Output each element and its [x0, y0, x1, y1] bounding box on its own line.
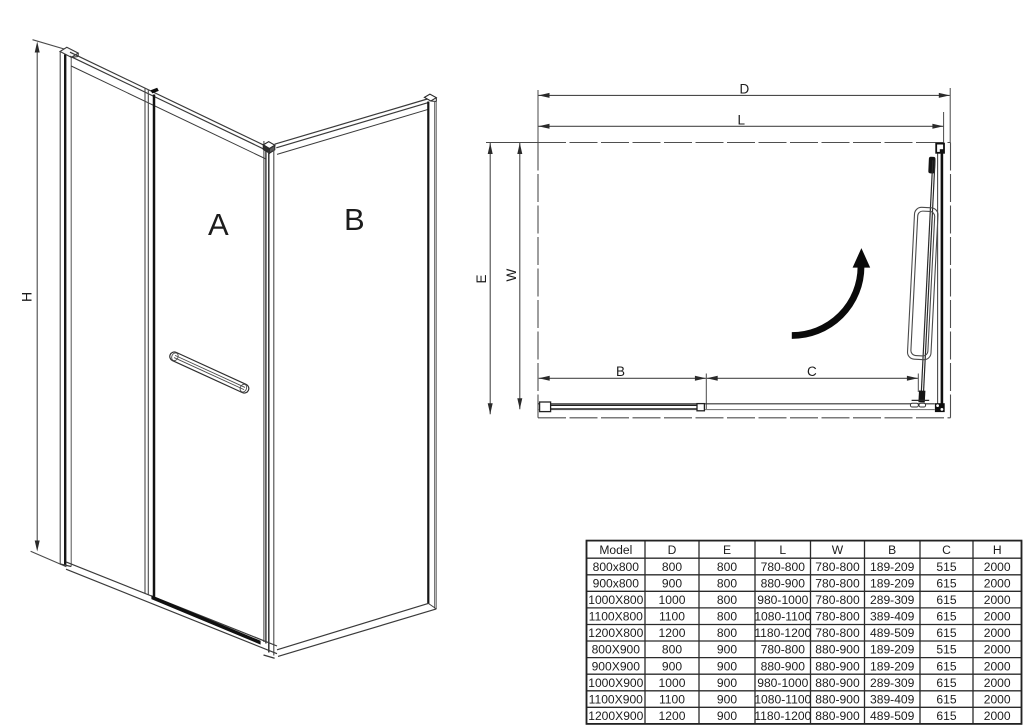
- svg-text:1100: 1100: [659, 692, 685, 706]
- svg-text:W: W: [504, 269, 519, 282]
- svg-text:615: 615: [936, 577, 956, 591]
- svg-text:880-900: 880-900: [815, 676, 860, 690]
- svg-text:800: 800: [717, 626, 737, 640]
- svg-text:B: B: [344, 202, 365, 237]
- svg-text:800X900: 800X900: [592, 643, 641, 657]
- svg-text:880-900: 880-900: [815, 692, 860, 706]
- svg-text:1200X900: 1200X900: [588, 709, 643, 723]
- svg-text:E: E: [723, 543, 731, 557]
- svg-text:615: 615: [936, 709, 956, 723]
- svg-text:780-800: 780-800: [761, 560, 806, 574]
- svg-text:L: L: [738, 113, 746, 128]
- svg-text:780-800: 780-800: [815, 560, 860, 574]
- svg-text:2000: 2000: [984, 560, 1011, 574]
- svg-text:900: 900: [717, 676, 737, 690]
- svg-text:1000: 1000: [659, 676, 686, 690]
- svg-text:389-409: 389-409: [870, 692, 915, 706]
- svg-text:615: 615: [936, 659, 956, 673]
- svg-text:900: 900: [717, 709, 737, 723]
- svg-text:900: 900: [662, 577, 682, 591]
- svg-text:2000: 2000: [984, 659, 1011, 673]
- svg-text:1200: 1200: [659, 709, 686, 723]
- svg-text:880-900: 880-900: [761, 659, 806, 673]
- svg-text:615: 615: [936, 676, 956, 690]
- svg-text:900: 900: [717, 659, 737, 673]
- svg-text:615: 615: [936, 626, 956, 640]
- svg-text:E: E: [474, 274, 489, 283]
- svg-text:800: 800: [717, 593, 737, 607]
- svg-text:189-209: 189-209: [870, 560, 915, 574]
- svg-text:389-409: 389-409: [870, 610, 915, 624]
- svg-text:780-800: 780-800: [815, 610, 860, 624]
- svg-text:1080-1100: 1080-1100: [754, 692, 811, 706]
- svg-text:B: B: [616, 364, 625, 379]
- svg-text:H: H: [993, 543, 1002, 557]
- svg-text:800: 800: [662, 643, 682, 657]
- svg-text:900X900: 900X900: [592, 659, 641, 673]
- svg-text:H: H: [19, 292, 35, 302]
- svg-text:C: C: [942, 543, 951, 557]
- svg-text:2000: 2000: [984, 577, 1011, 591]
- svg-text:780-800: 780-800: [815, 626, 860, 640]
- svg-text:2000: 2000: [984, 692, 1011, 706]
- svg-text:289-309: 289-309: [870, 593, 915, 607]
- svg-text:880-900: 880-900: [761, 577, 806, 591]
- svg-text:980-1000: 980-1000: [757, 593, 808, 607]
- svg-text:900: 900: [717, 643, 737, 657]
- svg-text:515: 515: [936, 643, 956, 657]
- svg-text:B: B: [888, 543, 896, 557]
- svg-text:880-900: 880-900: [815, 659, 860, 673]
- svg-text:189-209: 189-209: [870, 643, 915, 657]
- svg-text:900x800: 900x800: [593, 577, 640, 591]
- svg-text:880-900: 880-900: [815, 709, 860, 723]
- svg-text:900: 900: [717, 692, 737, 706]
- svg-text:780-800: 780-800: [815, 577, 860, 591]
- svg-text:515: 515: [936, 560, 956, 574]
- svg-text:2000: 2000: [984, 676, 1011, 690]
- svg-text:D: D: [668, 543, 677, 557]
- svg-text:189-209: 189-209: [870, 659, 915, 673]
- svg-text:1180-1200: 1180-1200: [754, 626, 811, 640]
- svg-text:615: 615: [936, 692, 956, 706]
- svg-text:800x800: 800x800: [593, 560, 640, 574]
- svg-text:Model: Model: [599, 543, 632, 557]
- svg-text:1000X900: 1000X900: [588, 676, 643, 690]
- svg-text:289-309: 289-309: [870, 676, 915, 690]
- svg-text:780-800: 780-800: [761, 643, 806, 657]
- svg-text:1100X900: 1100X900: [589, 692, 644, 706]
- svg-text:2000: 2000: [984, 610, 1011, 624]
- svg-text:1080-1100: 1080-1100: [754, 610, 811, 624]
- svg-text:800: 800: [717, 610, 737, 624]
- svg-text:1200: 1200: [659, 626, 686, 640]
- svg-text:189-209: 189-209: [870, 577, 915, 591]
- svg-text:980-1000: 980-1000: [757, 676, 808, 690]
- svg-text:W: W: [832, 543, 844, 557]
- svg-text:2000: 2000: [984, 709, 1011, 723]
- svg-text:2000: 2000: [984, 643, 1011, 657]
- svg-text:1000: 1000: [659, 593, 686, 607]
- svg-text:D: D: [740, 82, 750, 97]
- svg-text:1100X800: 1100X800: [589, 610, 644, 624]
- svg-text:A: A: [208, 207, 229, 242]
- svg-text:1000X800: 1000X800: [588, 593, 643, 607]
- svg-text:900: 900: [662, 659, 682, 673]
- svg-text:C: C: [807, 364, 817, 379]
- svg-text:780-800: 780-800: [815, 593, 860, 607]
- svg-text:L: L: [779, 543, 786, 557]
- svg-text:489-509: 489-509: [870, 709, 915, 723]
- svg-text:615: 615: [936, 593, 956, 607]
- svg-text:800: 800: [717, 577, 737, 591]
- svg-text:800: 800: [662, 560, 682, 574]
- svg-text:1180-1200: 1180-1200: [754, 709, 811, 723]
- svg-text:800: 800: [717, 560, 737, 574]
- svg-text:489-509: 489-509: [870, 626, 915, 640]
- svg-text:2000: 2000: [984, 626, 1011, 640]
- svg-text:880-900: 880-900: [815, 643, 860, 657]
- svg-text:1100: 1100: [659, 610, 685, 624]
- svg-text:2000: 2000: [984, 593, 1011, 607]
- svg-text:615: 615: [936, 610, 956, 624]
- svg-text:1200X800: 1200X800: [588, 626, 643, 640]
